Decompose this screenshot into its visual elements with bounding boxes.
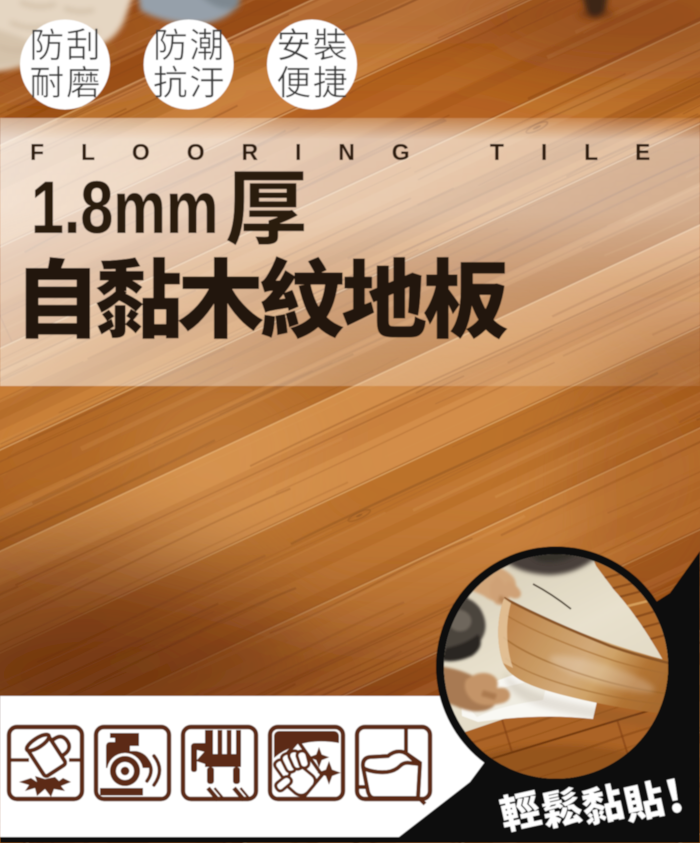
- svg-text:1.8mm: 1.8mm: [31, 167, 219, 250]
- svg-text:FLOORING TILE: FLOORING TILE: [30, 139, 687, 165]
